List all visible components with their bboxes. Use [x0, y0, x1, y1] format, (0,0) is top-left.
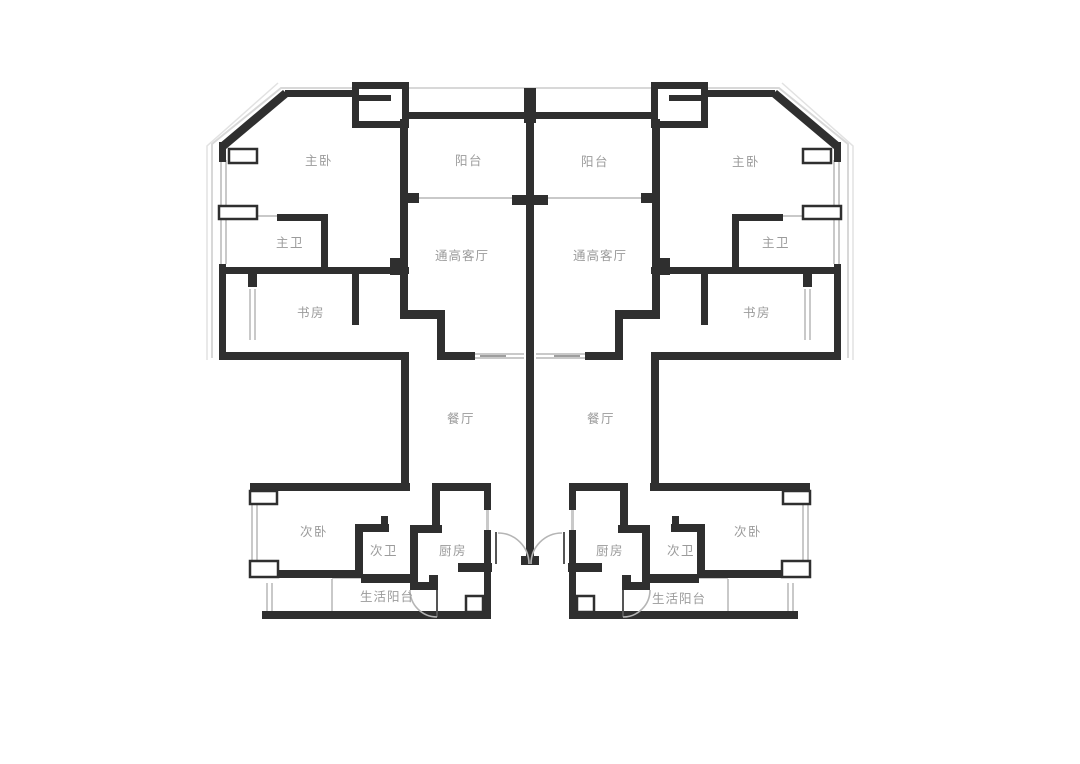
window-pier: [219, 206, 257, 219]
room-label-study-left: 书房: [297, 305, 325, 320]
sliding-door-line: [475, 357, 524, 359]
window-pier: [229, 149, 257, 163]
column: [466, 596, 483, 612]
wall-pier: [248, 274, 257, 287]
wall-study-east: [352, 274, 359, 325]
room-label-master-bath-left: 主卫: [276, 236, 304, 250]
wall-bedroom2-south: [272, 570, 363, 578]
room-label-second-bath-right: 次卫: [667, 544, 695, 558]
window-line: [251, 504, 253, 561]
window-line: [220, 160, 222, 206]
room-label-balcony-left: 阳台: [455, 153, 483, 168]
floor-plan-page: 主卧 阳台 主卫 通高客厅 书房 餐厅 次卧 次卫 厨房 生活阳台 阳台 主卧 …: [0, 0, 1080, 764]
wall-cap: [400, 193, 419, 203]
window-line: [266, 583, 268, 611]
sliding-door-line: [475, 353, 524, 355]
room-label-living-room-left: 通高客厅: [435, 248, 489, 263]
room-label-dining-right: 餐厅: [587, 411, 615, 426]
window-line: [225, 219, 227, 264]
room-label-second-bedroom-left: 次卧: [300, 525, 328, 539]
wall-kitchen-north: [432, 483, 491, 491]
window-pier: [250, 561, 278, 577]
balcony-glazing-line: [409, 197, 512, 199]
wall-living-west: [400, 203, 408, 312]
room-label-balcony-right: 阳台: [581, 154, 609, 169]
room-label-master-bedroom-left: 主卧: [305, 154, 333, 168]
wall: [358, 95, 391, 101]
balcony-glazing-line: [331, 579, 333, 611]
wall-masterbath-north: [277, 214, 328, 221]
room-label-second-bedroom-right: 次卧: [734, 525, 762, 539]
window-pier: [250, 491, 277, 504]
wall-west: [219, 142, 226, 162]
wall: [352, 82, 409, 89]
room-label-second-bath-left: 次卫: [370, 544, 398, 558]
room-label-living-room-right: 通高客厅: [573, 248, 627, 263]
wall-pier: [429, 575, 438, 590]
window-line: [220, 219, 222, 264]
door-opening-line: [257, 215, 277, 217]
wall-balcony-top: [408, 112, 530, 119]
wall-pier: [390, 258, 401, 275]
wall-bedroom2-east: [355, 524, 363, 578]
wall-dining-west: [401, 360, 409, 491]
sliding-door-leaf: [480, 355, 506, 357]
wall-masterbath-east: [321, 214, 328, 274]
wall-kitchen-west: [410, 533, 418, 583]
wall-bedroom-south: [219, 267, 409, 274]
party-wall: [526, 90, 530, 558]
wall-kitchen-south: [458, 563, 492, 572]
room-label-dining-left: 餐厅: [447, 411, 475, 426]
wall-living-south: [437, 352, 475, 360]
window-line: [256, 504, 258, 561]
wall-bath2-north: [355, 524, 389, 532]
room-label-master-bath-right: 主卫: [762, 236, 790, 250]
window-line: [254, 289, 256, 340]
window-line: [271, 583, 273, 611]
wall-lower-south: [262, 611, 491, 619]
window-line: [249, 289, 251, 340]
opening-line: [486, 510, 489, 530]
room-label-service-balcony-right: 生活阳台: [652, 591, 706, 606]
wall-pier: [381, 516, 388, 525]
wall-bath2-south: [361, 574, 412, 583]
wall-study-south: [219, 352, 409, 360]
wall-bedroom-balcony: [400, 119, 408, 198]
room-label-kitchen-left: 厨房: [439, 543, 467, 558]
wall-kitchen-nw: [432, 491, 440, 533]
room-label-master-bedroom-right: 主卧: [732, 155, 760, 169]
room-label-service-balcony-left: 生活阳台: [360, 589, 414, 604]
wall-kitchen-east: [484, 491, 491, 510]
wall-west: [219, 264, 226, 360]
window-line: [225, 160, 227, 206]
floor-plan-canvas: 主卧 阳台 主卫 通高客厅 书房 餐厅 次卧 次卫 厨房 生活阳台 阳台 主卧 …: [0, 0, 1080, 764]
entry-jamb: [484, 530, 491, 568]
wall-chamfer: [219, 90, 289, 149]
room-label-study-right: 书房: [743, 305, 771, 320]
walls-right-unit-mirrored: [530, 82, 853, 619]
wall-bedroom-top: [285, 90, 352, 97]
facade-outline: [212, 88, 530, 358]
room-label-kitchen-right: 厨房: [596, 543, 624, 558]
